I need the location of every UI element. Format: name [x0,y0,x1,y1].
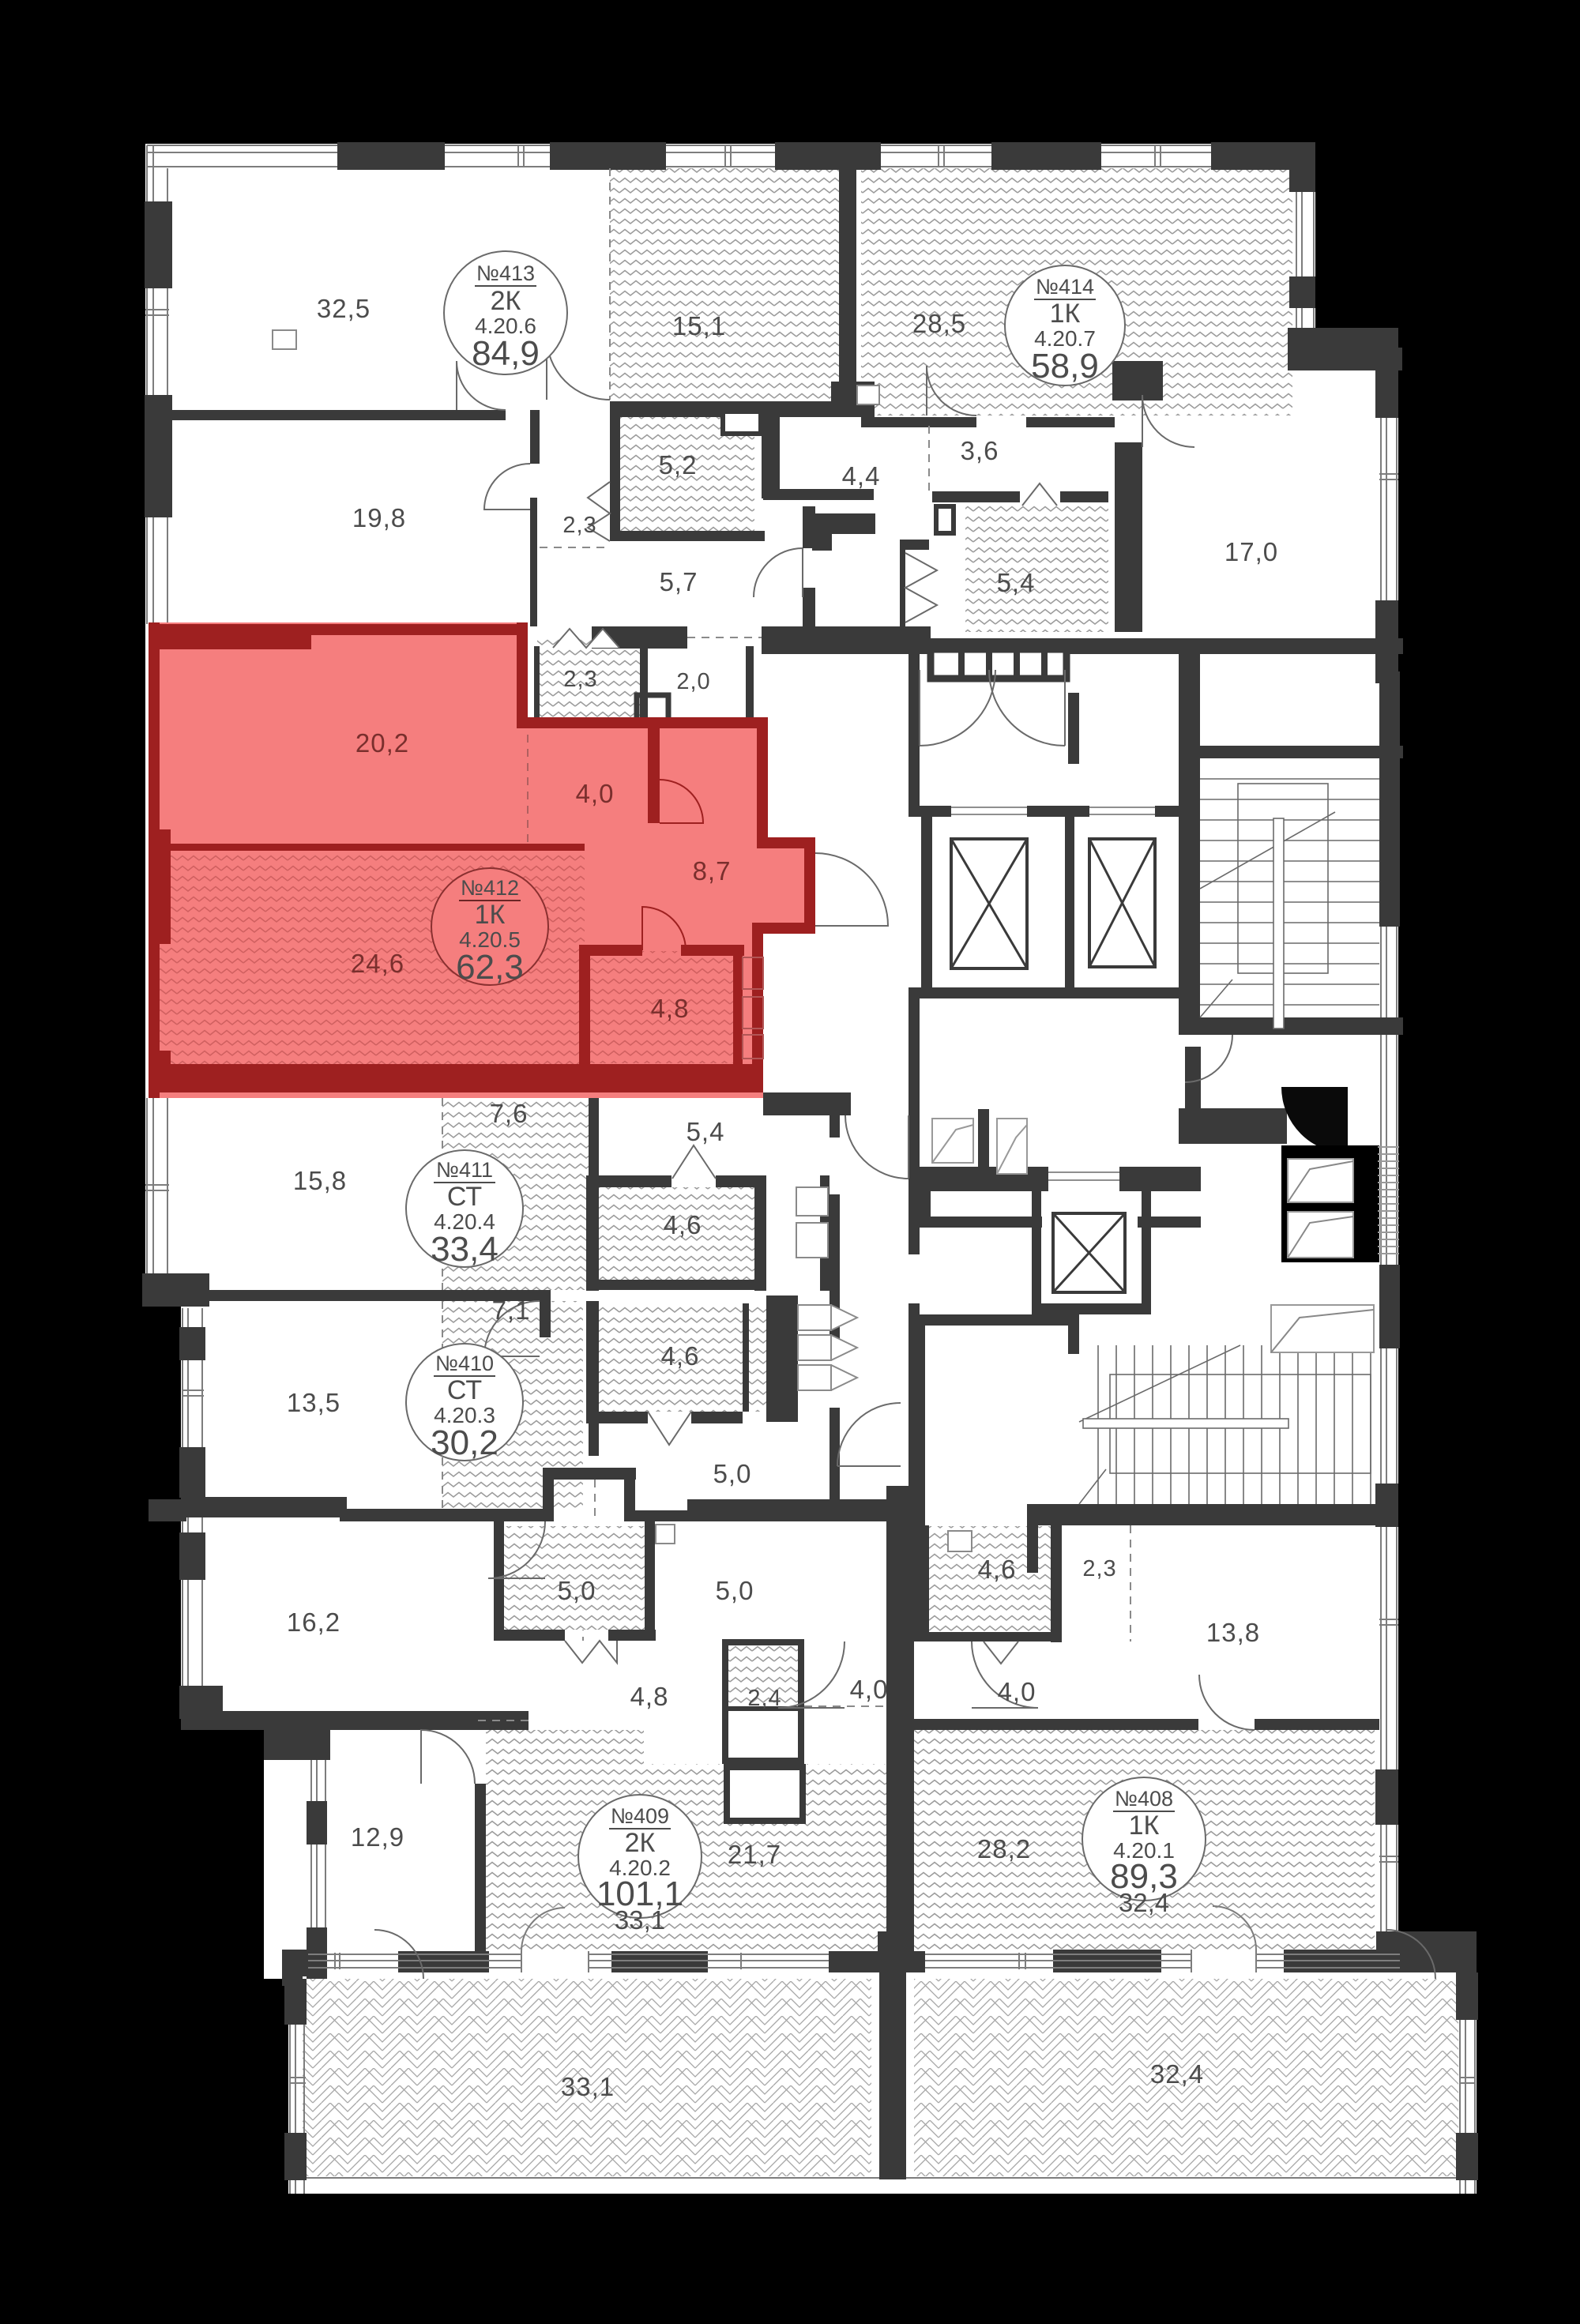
svg-text:13,8: 13,8 [1206,1618,1260,1647]
svg-text:№412: №412 [461,876,519,900]
svg-text:5,4: 5,4 [997,568,1036,597]
svg-text:4,6: 4,6 [978,1555,1017,1584]
svg-text:№410: №410 [435,1352,494,1375]
svg-text:4,6: 4,6 [661,1341,700,1371]
svg-text:3,6: 3,6 [961,436,999,465]
svg-text:2К: 2К [625,1828,656,1858]
svg-text:4,8: 4,8 [630,1682,669,1711]
svg-text:33,1: 33,1 [561,2072,615,2101]
svg-text:16,2: 16,2 [287,1608,340,1637]
svg-text:5,0: 5,0 [716,1576,754,1605]
svg-text:15,8: 15,8 [293,1166,347,1195]
svg-text:58,9: 58,9 [1031,347,1099,385]
svg-text:2,4: 2,4 [747,1686,781,1711]
svg-text:21,7: 21,7 [728,1840,781,1869]
svg-text:№413: №413 [476,261,535,285]
svg-text:32,4: 32,4 [1119,1888,1169,1917]
svg-text:12,9: 12,9 [351,1822,404,1852]
svg-text:28,2: 28,2 [977,1834,1031,1863]
svg-text:2,0: 2,0 [676,669,710,694]
svg-text:28,5: 28,5 [912,309,966,338]
svg-text:1К: 1К [1129,1811,1160,1841]
svg-text:33,1: 33,1 [615,1905,665,1935]
svg-text:5,7: 5,7 [660,567,698,596]
svg-text:5,0: 5,0 [713,1459,752,1488]
svg-text:2К: 2К [491,286,521,316]
svg-text:4,4: 4,4 [842,461,881,491]
svg-text:5,2: 5,2 [659,450,698,479]
svg-text:19,8: 19,8 [352,503,406,532]
svg-text:1К: 1К [1050,299,1081,329]
svg-text:№414: №414 [1036,275,1094,299]
svg-text:62,3: 62,3 [456,948,524,987]
svg-text:4,0: 4,0 [850,1675,889,1704]
svg-text:17,0: 17,0 [1224,537,1278,566]
svg-text:20,2: 20,2 [355,728,409,758]
svg-text:7,6: 7,6 [490,1099,529,1128]
svg-text:СТ: СТ [447,1182,482,1212]
svg-text:4,8: 4,8 [651,994,690,1023]
svg-text:84,9: 84,9 [472,334,540,373]
svg-text:2,3: 2,3 [562,513,596,538]
svg-text:7,1: 7,1 [492,1295,531,1325]
svg-text:5,4: 5,4 [687,1117,725,1146]
svg-text:4,6: 4,6 [664,1210,702,1239]
svg-text:15,1: 15,1 [672,311,726,340]
svg-text:№409: №409 [611,1804,669,1828]
svg-text:1К: 1К [475,900,506,930]
svg-text:5,0: 5,0 [558,1576,596,1605]
svg-text:13,5: 13,5 [287,1388,340,1417]
svg-text:2,3: 2,3 [563,667,597,692]
svg-text:№411: №411 [436,1158,493,1182]
svg-text:4,0: 4,0 [998,1677,1036,1706]
svg-text:33,4: 33,4 [431,1230,498,1269]
svg-text:24,6: 24,6 [351,949,404,978]
svg-text:СТ: СТ [447,1375,482,1405]
svg-text:8,7: 8,7 [693,856,732,886]
svg-text:4,0: 4,0 [576,779,615,808]
svg-text:32,4: 32,4 [1150,2059,1204,2089]
svg-text:№408: №408 [1115,1787,1173,1811]
svg-text:32,5: 32,5 [317,294,371,323]
svg-text:2,3: 2,3 [1082,1556,1116,1581]
svg-text:30,2: 30,2 [431,1423,498,1462]
